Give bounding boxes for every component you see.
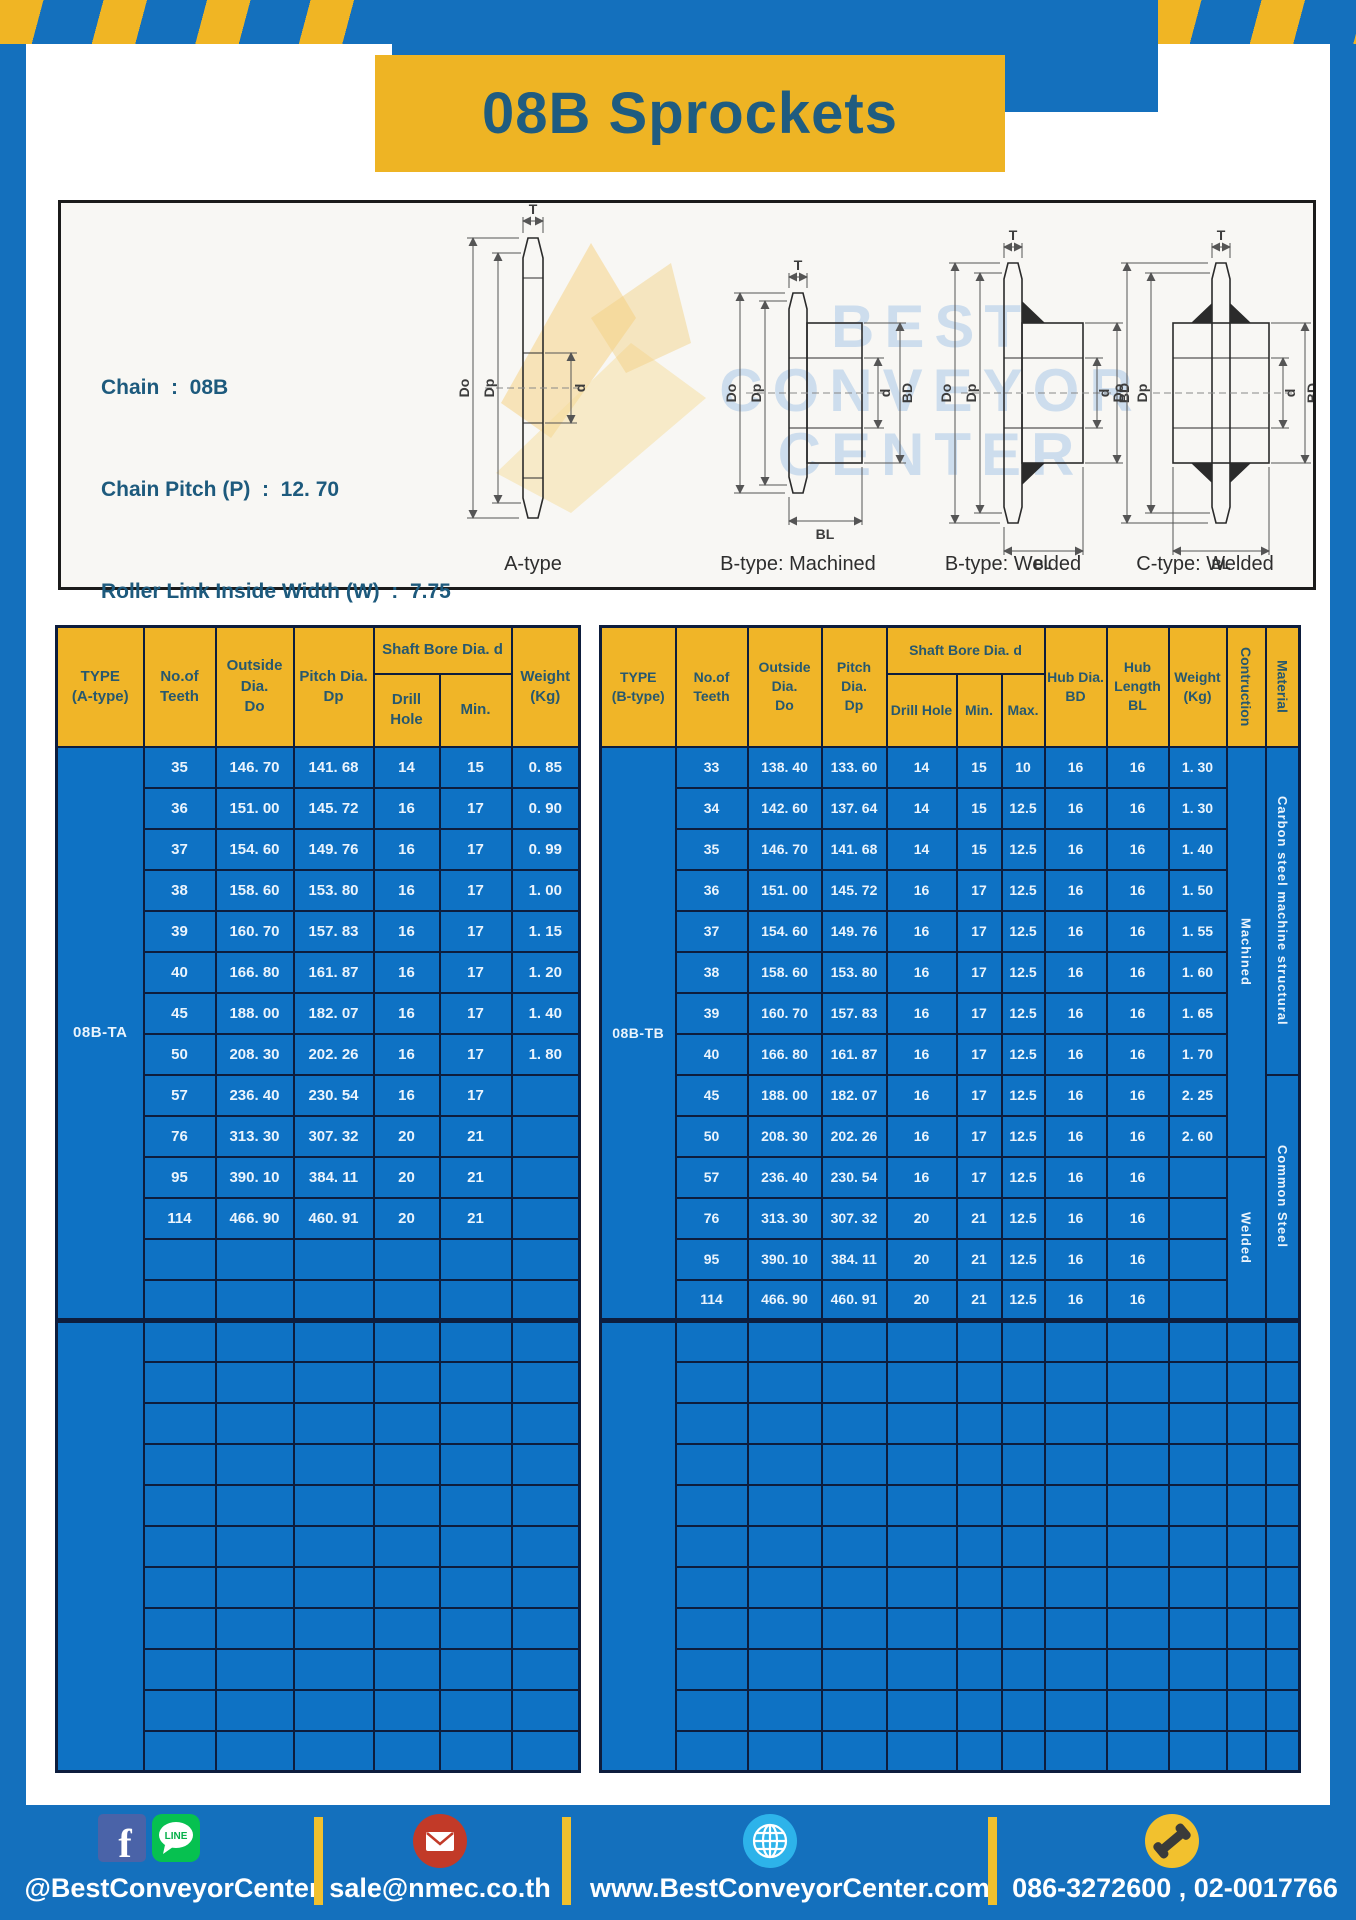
- table-cell: 0. 85: [512, 747, 580, 788]
- table-cell: [1266, 1444, 1300, 1485]
- table-cell: 12.5: [1002, 788, 1045, 829]
- table-cell: 12.5: [1002, 1239, 1045, 1280]
- table-cell: [374, 1731, 440, 1772]
- table-cell: 16: [887, 911, 957, 952]
- table-cell: 114: [676, 1280, 748, 1321]
- table-cell: 20: [374, 1157, 440, 1198]
- table-cell: 1. 30: [1169, 747, 1227, 788]
- table-cell: [440, 1485, 512, 1526]
- table-cell: [1045, 1362, 1107, 1403]
- table-cell: 14: [887, 747, 957, 788]
- table-cell: 35: [676, 829, 748, 870]
- table-cell: [1002, 1731, 1045, 1772]
- table-cell: [374, 1526, 440, 1567]
- table-cell: 16: [1045, 1075, 1107, 1116]
- table-cell: [1169, 1198, 1227, 1239]
- col-header-weight: Weight(Kg): [512, 627, 580, 747]
- table-cell: [512, 1075, 580, 1116]
- table-cell: 16: [887, 870, 957, 911]
- table-cell: [440, 1649, 512, 1690]
- table-cell: [374, 1649, 440, 1690]
- dim-label-BD: BD: [899, 383, 915, 403]
- table-cell: 40: [144, 952, 216, 993]
- table-cell: [822, 1731, 887, 1772]
- table-cell: 50: [144, 1034, 216, 1075]
- table-cell: [1169, 1608, 1227, 1649]
- table-cell: 460. 91: [294, 1198, 374, 1239]
- table-cell: 20: [374, 1198, 440, 1239]
- table-cell: [512, 1526, 580, 1567]
- table-cell: [512, 1690, 580, 1731]
- table-cell: [144, 1403, 216, 1444]
- table-cell: [957, 1485, 1002, 1526]
- table-cell: [957, 1567, 1002, 1608]
- table-cell: [216, 1567, 294, 1608]
- table-cell: [512, 1485, 580, 1526]
- table-cell: [216, 1403, 294, 1444]
- table-cell: [887, 1690, 957, 1731]
- table-cell: 133. 60: [822, 747, 887, 788]
- table-cell: [294, 1690, 374, 1731]
- col-header-shaft-bore: Shaft Bore Dia. d: [887, 627, 1045, 674]
- table-cell: 161. 87: [294, 952, 374, 993]
- construction-cell: Welded: [1227, 1157, 1266, 1321]
- dim-label-Do: Do: [456, 379, 472, 398]
- table-cell: [440, 1239, 512, 1280]
- table-cell: [1002, 1321, 1045, 1362]
- table-cell: [512, 1403, 580, 1444]
- table-cell: 16: [1045, 952, 1107, 993]
- table-cell: 16: [1045, 870, 1107, 911]
- table-cell: 151. 00: [216, 788, 294, 829]
- table-cell: [1045, 1526, 1107, 1567]
- table-cell: [440, 1444, 512, 1485]
- caption-a-type: A-type: [413, 553, 653, 576]
- diagram-panel: BEST CONVEYOR CENTER Chain : 08B Chain P…: [58, 200, 1316, 590]
- table-cell: 20: [887, 1198, 957, 1239]
- table-cell: 151. 00: [748, 870, 822, 911]
- table-cell: [957, 1526, 1002, 1567]
- table-cell: [440, 1362, 512, 1403]
- table-cell: 17: [440, 829, 512, 870]
- table-cell: 35: [144, 747, 216, 788]
- table-cell: 141. 68: [294, 747, 374, 788]
- table-cell: [512, 1608, 580, 1649]
- table-cell: 16: [1107, 952, 1169, 993]
- type-cell: 08B-TA: [57, 747, 144, 1321]
- col-header-hub-dia: Hub Dia.BD: [1045, 627, 1107, 747]
- table-cell: 16: [374, 952, 440, 993]
- table-cell: 17: [440, 1034, 512, 1075]
- dim-label-T: T: [1217, 227, 1226, 243]
- table-cell: 21: [440, 1157, 512, 1198]
- table-cell: [822, 1321, 887, 1362]
- table-cell: 17: [957, 1157, 1002, 1198]
- table-cell: 307. 32: [294, 1116, 374, 1157]
- material-cell: Carbon steel machine structural: [1266, 747, 1300, 1075]
- table-cell: 202. 26: [822, 1116, 887, 1157]
- table-cell: 16: [887, 952, 957, 993]
- table-cell: [1107, 1567, 1169, 1608]
- table-cell: [294, 1239, 374, 1280]
- table-cell: [294, 1485, 374, 1526]
- table-cell: 2. 60: [1169, 1116, 1227, 1157]
- col-header-weight: Weight(Kg): [1169, 627, 1227, 747]
- table-cell: 16: [1107, 993, 1169, 1034]
- table-cell: [216, 1239, 294, 1280]
- drawing-c-type-welded: T Do Dp d BD BL: [1110, 227, 1313, 572]
- table-cell: 38: [144, 870, 216, 911]
- table-cell: 460. 91: [822, 1280, 887, 1321]
- facebook-icon: f: [97, 1813, 147, 1863]
- table-cell: [957, 1608, 1002, 1649]
- table-cell: 153. 80: [294, 870, 374, 911]
- table-cell: 188. 00: [748, 1075, 822, 1116]
- table-cell: [748, 1567, 822, 1608]
- table-cell: 16: [1045, 993, 1107, 1034]
- table-cell: [1169, 1362, 1227, 1403]
- drawing-a-type: T Do Dp d: [456, 203, 588, 518]
- table-cell: [822, 1608, 887, 1649]
- table-cell: 16: [1107, 870, 1169, 911]
- col-header-outside-dia: OutsideDia.Do: [748, 627, 822, 747]
- table-cell: 142. 60: [748, 788, 822, 829]
- svg-text:LINE: LINE: [165, 1831, 188, 1842]
- table-cell: [1002, 1649, 1045, 1690]
- table-cell: 17: [440, 788, 512, 829]
- table-cell: 17: [440, 870, 512, 911]
- table-cell: [822, 1362, 887, 1403]
- table-cell: [1002, 1690, 1045, 1731]
- table-cell: [748, 1444, 822, 1485]
- table-cell: [1266, 1403, 1300, 1444]
- table-cell: [374, 1444, 440, 1485]
- col-header-pitch-dia: Pitch Dia.Dp: [294, 627, 374, 747]
- table-cell: 16: [1107, 1280, 1169, 1321]
- table-cell: 16: [374, 870, 440, 911]
- table-cell: [748, 1731, 822, 1772]
- table-cell: [1169, 1526, 1227, 1567]
- table-cell: 16: [887, 1075, 957, 1116]
- table-cell: 12.5: [1002, 1034, 1045, 1075]
- phone-numbers-text: 086-3272600 , 02-0017766: [1000, 1873, 1350, 1904]
- table-cell: 390. 10: [216, 1157, 294, 1198]
- dim-label-d: d: [877, 389, 893, 398]
- table-cell: 39: [676, 993, 748, 1034]
- table-cell: [1169, 1649, 1227, 1690]
- table-cell: [374, 1239, 440, 1280]
- table-cell: [374, 1608, 440, 1649]
- table-cell: 384. 11: [294, 1157, 374, 1198]
- table-cell: 1. 80: [512, 1034, 580, 1075]
- table-cell: [1045, 1608, 1107, 1649]
- col-header-material: Material: [1266, 627, 1300, 747]
- table-cell: 17: [957, 993, 1002, 1034]
- table-cell: [374, 1403, 440, 1444]
- table-cell: [216, 1526, 294, 1567]
- table-cell: 16: [1045, 1239, 1107, 1280]
- table-cell: [294, 1649, 374, 1690]
- table-cell: 14: [887, 829, 957, 870]
- material-cell: Common Steel: [1266, 1075, 1300, 1321]
- table-cell: [144, 1731, 216, 1772]
- col-header-drill-hole: Drill Hole: [887, 674, 957, 747]
- table-cell: 12.5: [1002, 1116, 1045, 1157]
- construction-cell: Machined: [1227, 747, 1266, 1157]
- table-cell: 16: [1045, 1157, 1107, 1198]
- table-cell: [1227, 1526, 1266, 1567]
- table-cell: [1045, 1321, 1107, 1362]
- table-cell: [1169, 1239, 1227, 1280]
- table-cell: 313. 30: [216, 1116, 294, 1157]
- hazard-stripes-left: [0, 0, 392, 44]
- table-cell: [144, 1567, 216, 1608]
- table-cell: [512, 1649, 580, 1690]
- table-cell: 15: [957, 829, 1002, 870]
- table-cell: [144, 1280, 216, 1321]
- table-cell: [1169, 1403, 1227, 1444]
- table-cell: [1002, 1444, 1045, 1485]
- table-cell: [144, 1239, 216, 1280]
- table-cell: 16: [1107, 788, 1169, 829]
- table-cell: 14: [374, 747, 440, 788]
- table-cell: [1107, 1403, 1169, 1444]
- col-header-pitch-dia: Pitch Dia.Dp: [822, 627, 887, 747]
- table-cell: 45: [676, 1075, 748, 1116]
- table-cell: 16: [1045, 1034, 1107, 1075]
- table-cell: 21: [957, 1239, 1002, 1280]
- table-cell: [216, 1321, 294, 1362]
- table-cell: 20: [374, 1116, 440, 1157]
- table-cell: [440, 1608, 512, 1649]
- table-cell: 12.5: [1002, 1075, 1045, 1116]
- table-cell: 20: [887, 1280, 957, 1321]
- table-cell: [887, 1608, 957, 1649]
- hazard-stripes-right: [1158, 0, 1356, 44]
- sprocket-table-a-type: TYPE(A-type) No.ofTeeth OutsideDia.Do Pi…: [55, 625, 581, 1773]
- table-cell: [216, 1608, 294, 1649]
- table-cell: 39: [144, 911, 216, 952]
- table-cell: 76: [676, 1198, 748, 1239]
- col-header-hub-length: HubLengthBL: [1107, 627, 1169, 747]
- table-cell: [1227, 1485, 1266, 1526]
- table-cell: 1. 65: [1169, 993, 1227, 1034]
- table-cell: 149. 76: [822, 911, 887, 952]
- table-cell: [822, 1485, 887, 1526]
- table-cell: [748, 1321, 822, 1362]
- table-cell: [1045, 1690, 1107, 1731]
- dim-label-T: T: [794, 257, 803, 273]
- dim-label-T: T: [529, 203, 538, 217]
- col-header-construction: Contruction: [1227, 627, 1266, 747]
- table-cell: [1045, 1731, 1107, 1772]
- table-cell: [216, 1362, 294, 1403]
- table-cell: 153. 80: [822, 952, 887, 993]
- table-cell: [676, 1362, 748, 1403]
- table-cell: [1227, 1608, 1266, 1649]
- table-cell: [1169, 1690, 1227, 1731]
- table-cell: [216, 1731, 294, 1772]
- table-cell: 17: [957, 1075, 1002, 1116]
- table-cell: [374, 1280, 440, 1321]
- table-cell: [1107, 1485, 1169, 1526]
- table-cell: [822, 1526, 887, 1567]
- drawing-b-type-welded: T Do Dp d BD BL: [938, 227, 1132, 572]
- table-cell: [748, 1485, 822, 1526]
- table-cell: 114: [144, 1198, 216, 1239]
- table-cell: 1. 70: [1169, 1034, 1227, 1075]
- table-cell: 182. 07: [294, 993, 374, 1034]
- table-cell: 149. 76: [294, 829, 374, 870]
- table-cell: [374, 1362, 440, 1403]
- table-cell: [1266, 1649, 1300, 1690]
- email-icon: [412, 1813, 468, 1869]
- email-text: sale@nmec.co.th: [320, 1873, 560, 1904]
- table-cell: [144, 1485, 216, 1526]
- table-cell: 17: [957, 1034, 1002, 1075]
- table-cell: 202. 26: [294, 1034, 374, 1075]
- table-cell: [748, 1526, 822, 1567]
- caption-b-type-machined: B-type: Machined: [678, 553, 918, 576]
- table-cell: [1002, 1526, 1045, 1567]
- table-cell: [144, 1321, 216, 1362]
- table-cell: 137. 64: [822, 788, 887, 829]
- table-cell: 16: [374, 1075, 440, 1116]
- table-cell: [957, 1403, 1002, 1444]
- table-cell: [748, 1403, 822, 1444]
- sprocket-table-b-type: TYPE(B-type) No.ofTeeth OutsideDia.Do Pi…: [599, 625, 1301, 1773]
- table-cell: [512, 1731, 580, 1772]
- table-cell: 21: [957, 1280, 1002, 1321]
- table-cell: 12.5: [1002, 1280, 1045, 1321]
- frame-right: [1330, 0, 1356, 1920]
- table-cell: [957, 1731, 1002, 1772]
- table-cell: [676, 1608, 748, 1649]
- table-cell: 17: [440, 993, 512, 1034]
- table-cell: 1. 55: [1169, 911, 1227, 952]
- dim-label-Dp: Dp: [748, 384, 764, 403]
- table-cell: 17: [957, 952, 1002, 993]
- table-cell: [1227, 1403, 1266, 1444]
- table-cell: 16: [374, 788, 440, 829]
- table-cell: [748, 1608, 822, 1649]
- table-cell: [294, 1567, 374, 1608]
- table-cell: [144, 1444, 216, 1485]
- table-cell: [676, 1321, 748, 1362]
- col-header-teeth: No.ofTeeth: [144, 627, 216, 747]
- table-cell: [887, 1649, 957, 1690]
- table-cell: [1107, 1321, 1169, 1362]
- table-cell: 12.5: [1002, 1198, 1045, 1239]
- table-cell: [1002, 1403, 1045, 1444]
- table-cell: 37: [676, 911, 748, 952]
- table-cell: [676, 1649, 748, 1690]
- table-cell: 230. 54: [822, 1157, 887, 1198]
- table-cell: 1. 00: [512, 870, 580, 911]
- table-cell: [887, 1362, 957, 1403]
- table-cell: 14: [887, 788, 957, 829]
- table-cell: 16: [1045, 1116, 1107, 1157]
- table-cell: [957, 1690, 1002, 1731]
- table-cell: [676, 1444, 748, 1485]
- table-cell: 16: [374, 911, 440, 952]
- table-cell: 188. 00: [216, 993, 294, 1034]
- table-cell: [676, 1690, 748, 1731]
- table-cell: [676, 1567, 748, 1608]
- table-cell: [512, 1444, 580, 1485]
- table-cell: 36: [144, 788, 216, 829]
- table-cell: 0. 90: [512, 788, 580, 829]
- table-cell: [1002, 1485, 1045, 1526]
- table-cell: 145. 72: [294, 788, 374, 829]
- table-cell: 10: [1002, 747, 1045, 788]
- col-header-shaft-bore: Shaft Bore Dia. d: [374, 627, 512, 674]
- table-cell: 12.5: [1002, 870, 1045, 911]
- table-cell: [1227, 1567, 1266, 1608]
- table-cell: 384. 11: [822, 1239, 887, 1280]
- table-cell: [1227, 1690, 1266, 1731]
- dim-label-BL: BL: [816, 526, 835, 542]
- dim-label-Dp: Dp: [963, 384, 979, 403]
- table-cell: [676, 1731, 748, 1772]
- table-cell: [1107, 1608, 1169, 1649]
- table-cell: [512, 1280, 580, 1321]
- table-cell: 16: [1107, 911, 1169, 952]
- table-cell: 16: [887, 1116, 957, 1157]
- table-cell: [1227, 1731, 1266, 1772]
- table-cell: 21: [440, 1198, 512, 1239]
- table-cell: 16: [374, 829, 440, 870]
- social-handle-text: @BestConveyorCenter: [22, 1873, 322, 1904]
- table-cell: [1169, 1485, 1227, 1526]
- table-cell: 16: [1107, 1034, 1169, 1075]
- table-cell: 95: [676, 1239, 748, 1280]
- dim-label-Dp: Dp: [1134, 384, 1150, 403]
- table-cell: [887, 1321, 957, 1362]
- table-cell: 21: [957, 1198, 1002, 1239]
- table-cell: 236. 40: [216, 1075, 294, 1116]
- table-cell: 16: [374, 993, 440, 1034]
- table-cell: [1266, 1485, 1300, 1526]
- table-cell: [1266, 1526, 1300, 1567]
- dim-label-d: d: [572, 384, 588, 393]
- table-cell: 16: [887, 1157, 957, 1198]
- title-banner: 08B Sprockets: [375, 55, 1005, 172]
- table-cell: [822, 1444, 887, 1485]
- table-cell: [512, 1239, 580, 1280]
- line-app-icon: LINE: [151, 1813, 201, 1863]
- table-cell: [957, 1362, 1002, 1403]
- table-cell: 230. 54: [294, 1075, 374, 1116]
- table-cell: 166. 80: [748, 1034, 822, 1075]
- table-cell: [887, 1403, 957, 1444]
- table-cell: 15: [957, 747, 1002, 788]
- dim-label-Do: Do: [938, 384, 954, 403]
- table-cell: [294, 1362, 374, 1403]
- table-cell: [1266, 1567, 1300, 1608]
- table-cell: [676, 1526, 748, 1567]
- table-cell: 157. 83: [822, 993, 887, 1034]
- table-cell: 160. 70: [748, 993, 822, 1034]
- table-cell: 16: [1107, 1116, 1169, 1157]
- dim-label-d: d: [1282, 389, 1298, 398]
- table-cell: 33: [676, 747, 748, 788]
- table-cell: [440, 1731, 512, 1772]
- table-cell: [748, 1690, 822, 1731]
- table-cell: 38: [676, 952, 748, 993]
- table-cell: 208. 30: [748, 1116, 822, 1157]
- table-cell: [1107, 1690, 1169, 1731]
